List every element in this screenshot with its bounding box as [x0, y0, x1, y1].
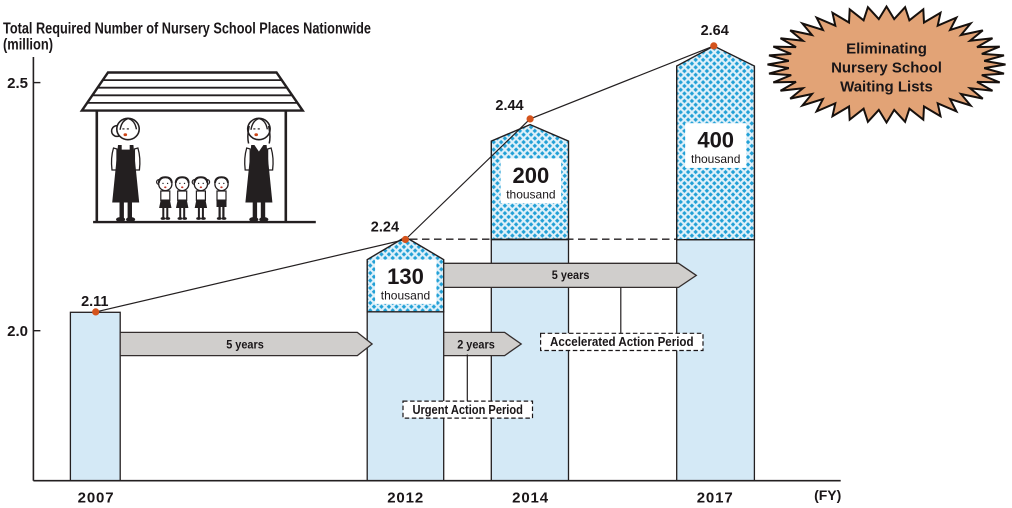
svg-text:Urgent Action Period: Urgent Action Period [412, 403, 523, 417]
svg-text:thousand: thousand [691, 152, 740, 166]
svg-text:2.5: 2.5 [7, 75, 28, 92]
svg-text:2.44: 2.44 [495, 98, 523, 114]
svg-text:Accelerated Action Period: Accelerated Action Period [550, 335, 694, 349]
svg-text:Nursery School: Nursery School [831, 60, 942, 77]
svg-text:2.64: 2.64 [701, 23, 729, 39]
svg-text:2017: 2017 [697, 490, 733, 507]
svg-text:2.11: 2.11 [81, 294, 108, 310]
svg-text:Total Required Number of Nurse: Total Required Number of Nursery School … [3, 21, 371, 38]
svg-text:2012: 2012 [387, 490, 423, 507]
svg-text:2.24: 2.24 [371, 220, 399, 236]
svg-text:thousand: thousand [381, 289, 430, 303]
svg-text:2014: 2014 [512, 490, 549, 507]
svg-text:2007: 2007 [78, 490, 114, 507]
svg-text:200: 200 [513, 163, 550, 188]
svg-text:5 years: 5 years [226, 338, 264, 351]
svg-text:(FY): (FY) [814, 487, 841, 503]
svg-text:Eliminating: Eliminating [846, 41, 927, 58]
svg-text:400: 400 [697, 128, 734, 153]
svg-text:2 years: 2 years [457, 338, 495, 351]
svg-text:2.0: 2.0 [7, 323, 28, 340]
svg-text:130: 130 [387, 264, 424, 289]
svg-text:thousand: thousand [506, 188, 555, 202]
svg-text:Waiting Lists: Waiting Lists [840, 79, 933, 96]
svg-text:5 years: 5 years [552, 269, 590, 282]
svg-text:(million): (million) [3, 37, 53, 54]
